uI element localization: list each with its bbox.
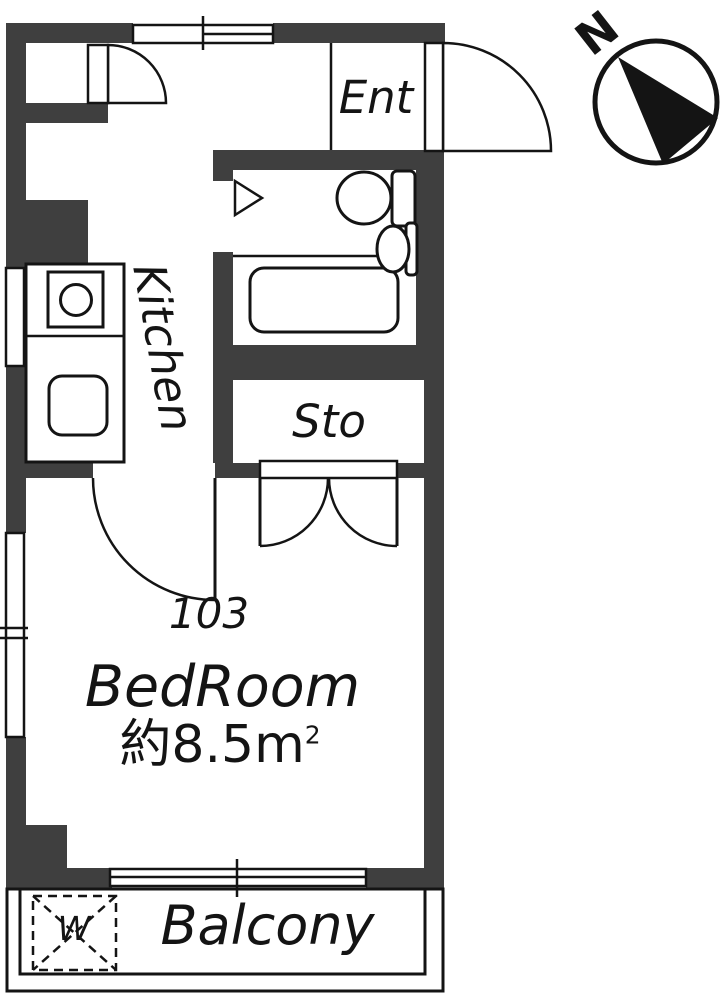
- wall-left-mid: [6, 363, 26, 533]
- wall-left-upper: [6, 43, 26, 268]
- bedroom-area-sup: 2: [305, 721, 321, 750]
- wall-niche-bottom: [26, 103, 108, 123]
- door-entrance: [425, 43, 551, 151]
- label-bedroom: BedRoom: [60, 658, 385, 718]
- wall-bottom-step-2: [67, 868, 112, 890]
- label-bedroom-area: 約8.5m2: [45, 718, 395, 773]
- door-bedroom: [93, 478, 215, 600]
- wall-bathroom-bottom: [213, 345, 444, 380]
- toilet-icon: [337, 171, 415, 226]
- door-top-left: [88, 45, 166, 103]
- kitchen-counter: [26, 264, 124, 462]
- wall-top-left: [6, 23, 133, 43]
- window-top: [133, 16, 273, 50]
- wall-bottom-right: [366, 868, 444, 890]
- door-storage-double: [260, 461, 397, 546]
- washbasin-icon: [377, 223, 417, 275]
- floor-plan: Ent Kitchen Sto 103 BedRoom 約8.5m2 Balco…: [0, 0, 725, 1000]
- wall-bathroom-top: [213, 150, 444, 170]
- window-bedroom-left: [0, 533, 28, 737]
- wall-top-right: [273, 23, 445, 43]
- bedroom-area-text: 約8.5m: [119, 715, 304, 775]
- bathroom-fixtures: [233, 171, 417, 332]
- wall-kitchen-block: [25, 200, 88, 263]
- label-washer: W: [44, 912, 104, 947]
- wall-bedroom-top-left: [26, 463, 93, 478]
- label-storage: Sto: [269, 398, 389, 445]
- floor-plan-drawing: [0, 0, 725, 1000]
- label-room-number: 103: [148, 592, 270, 636]
- wall-bedroom-top-mid: [215, 463, 260, 478]
- stove-icon: [48, 272, 103, 327]
- wall-bedroom-top-right: [397, 463, 424, 478]
- bathtub-icon: [250, 268, 398, 332]
- window-kitchen-left: [6, 268, 24, 366]
- label-balcony: Balcony: [130, 898, 405, 955]
- door-bathroom-folding: [212, 181, 262, 252]
- window-bedroom-bottom: [110, 859, 366, 897]
- wall-right: [424, 151, 444, 890]
- label-entrance: Ent: [330, 74, 422, 121]
- kitchen-sink-icon: [49, 376, 107, 435]
- wall-bottom-step-1: [6, 825, 67, 890]
